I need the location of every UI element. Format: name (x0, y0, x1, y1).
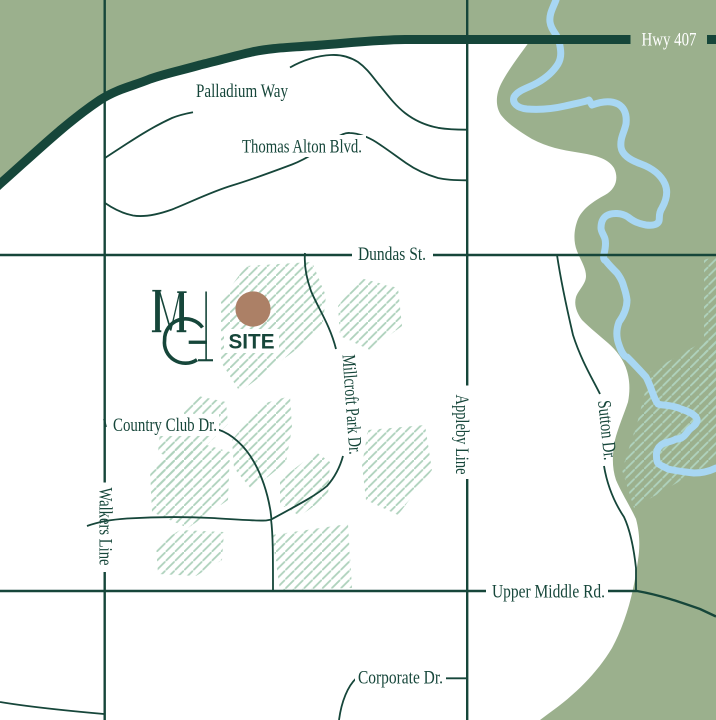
svg-text:Country Club Dr.: Country Club Dr. (113, 415, 217, 436)
svg-text:Dundas St.: Dundas St. (358, 244, 426, 265)
svg-text:Palladium Way: Palladium Way (196, 81, 288, 102)
svg-text:Corporate Dr.: Corporate Dr. (358, 667, 443, 688)
svg-text:SITE: SITE (229, 331, 275, 354)
svg-text:Thomas Alton Blvd.: Thomas Alton Blvd. (242, 137, 362, 158)
svg-text:Walkers Line: Walkers Line (95, 488, 116, 566)
svg-text:Appleby Line: Appleby Line (451, 395, 472, 475)
svg-text:Hwy 407: Hwy 407 (642, 30, 697, 51)
svg-text:Upper Middle Rd.: Upper Middle Rd. (492, 582, 605, 603)
